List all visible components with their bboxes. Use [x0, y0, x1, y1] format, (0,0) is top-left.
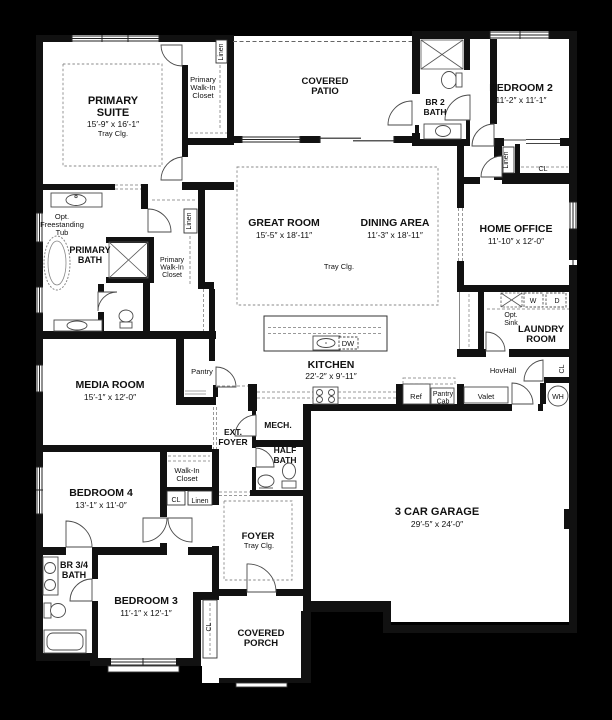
- svg-text:BATH: BATH: [274, 455, 297, 465]
- svg-text:D: D: [554, 298, 559, 305]
- svg-text:29′-5″ x 24′-0″: 29′-5″ x 24′-0″: [411, 519, 463, 529]
- svg-text:PRIMARY: PRIMARY: [69, 245, 110, 255]
- svg-text:BR 2: BR 2: [425, 97, 445, 107]
- svg-text:15′-5″ x 18′-11″: 15′-5″ x 18′-11″: [256, 230, 312, 240]
- svg-text:Valet: Valet: [478, 392, 495, 401]
- svg-text:Linen: Linen: [218, 43, 225, 60]
- svg-text:Tray Clg.: Tray Clg.: [244, 541, 274, 550]
- svg-text:CL: CL: [539, 166, 548, 173]
- svg-text:BR 3/4: BR 3/4: [60, 560, 88, 570]
- svg-text:3 CAR GARAGE: 3 CAR GARAGE: [395, 506, 479, 518]
- svg-text:DW: DW: [342, 339, 355, 348]
- svg-text:MEDIA ROOM: MEDIA ROOM: [75, 379, 144, 391]
- svg-text:Ref: Ref: [410, 392, 423, 401]
- svg-text:Opt.: Opt.: [504, 312, 517, 319]
- svg-text:HovHall: HovHall: [490, 366, 517, 375]
- svg-text:GREAT ROOM: GREAT ROOM: [248, 217, 320, 229]
- svg-text:11′-10″ x 12′-0″: 11′-10″ x 12′-0″: [488, 236, 544, 246]
- svg-text:15′-9″ x 16′-1″: 15′-9″ x 16′-1″: [87, 119, 139, 129]
- svg-text:Linen: Linen: [186, 212, 193, 229]
- svg-text:Primary: Primary: [160, 257, 185, 264]
- svg-text:Linen: Linen: [503, 151, 510, 168]
- svg-text:11′-2″ x 11′-1″: 11′-2″ x 11′-1″: [496, 95, 547, 105]
- svg-text:MECH.: MECH.: [264, 420, 291, 430]
- svg-text:BATH: BATH: [62, 570, 86, 580]
- svg-text:BATH: BATH: [424, 107, 447, 117]
- svg-text:PORCH: PORCH: [244, 638, 278, 649]
- svg-text:Pantry: Pantry: [191, 367, 213, 376]
- svg-text:PRIMARY: PRIMARY: [88, 95, 139, 107]
- svg-text:SUITE: SUITE: [97, 107, 129, 119]
- svg-text:Pantry: Pantry: [433, 391, 454, 398]
- svg-text:11′-1″ x 12′-1″: 11′-1″ x 12′-1″: [120, 608, 172, 618]
- svg-text:Tray Clg.: Tray Clg.: [98, 129, 128, 138]
- svg-text:CL: CL: [559, 364, 566, 373]
- svg-text:Walk-In: Walk-In: [160, 265, 184, 272]
- svg-text:11′-3″ x 18′-11″: 11′-3″ x 18′-11″: [367, 230, 423, 240]
- svg-text:15′-1″ x 12′-0″: 15′-1″ x 12′-0″: [84, 392, 136, 402]
- svg-text:BEDROOM 4: BEDROOM 4: [69, 487, 133, 499]
- svg-text:DINING AREA: DINING AREA: [360, 217, 429, 229]
- svg-text:Sink: Sink: [504, 320, 518, 327]
- svg-text:Linen: Linen: [191, 498, 208, 505]
- svg-text:PATIO: PATIO: [311, 86, 339, 97]
- svg-text:WH: WH: [552, 394, 564, 401]
- svg-text:22′-2″ x 9′-11″: 22′-2″ x 9′-11″: [305, 371, 357, 381]
- svg-text:EXT.: EXT.: [224, 427, 242, 437]
- svg-text:ROOM: ROOM: [526, 334, 556, 345]
- svg-text:HOME OFFICE: HOME OFFICE: [480, 223, 553, 235]
- svg-text:BEDROOM 2: BEDROOM 2: [489, 82, 553, 94]
- svg-text:Tub: Tub: [56, 228, 69, 237]
- svg-text:Cab: Cab: [437, 399, 450, 406]
- svg-text:13′-1″ x 11′-0″: 13′-1″ x 11′-0″: [75, 500, 127, 510]
- svg-text:CL: CL: [172, 497, 181, 504]
- svg-text:BEDROOM 3: BEDROOM 3: [114, 595, 178, 607]
- svg-text:CL: CL: [206, 622, 213, 631]
- svg-text:Closet: Closet: [176, 474, 198, 483]
- svg-text:HALF: HALF: [274, 445, 297, 455]
- svg-text:BATH: BATH: [78, 255, 102, 265]
- svg-text:Closet: Closet: [192, 91, 214, 100]
- svg-text:FOYER: FOYER: [218, 437, 247, 447]
- svg-text:Closet: Closet: [162, 272, 182, 279]
- svg-text:KITCHEN: KITCHEN: [308, 359, 355, 371]
- svg-text:Tray Clg.: Tray Clg.: [324, 262, 354, 271]
- svg-text:W: W: [530, 298, 537, 305]
